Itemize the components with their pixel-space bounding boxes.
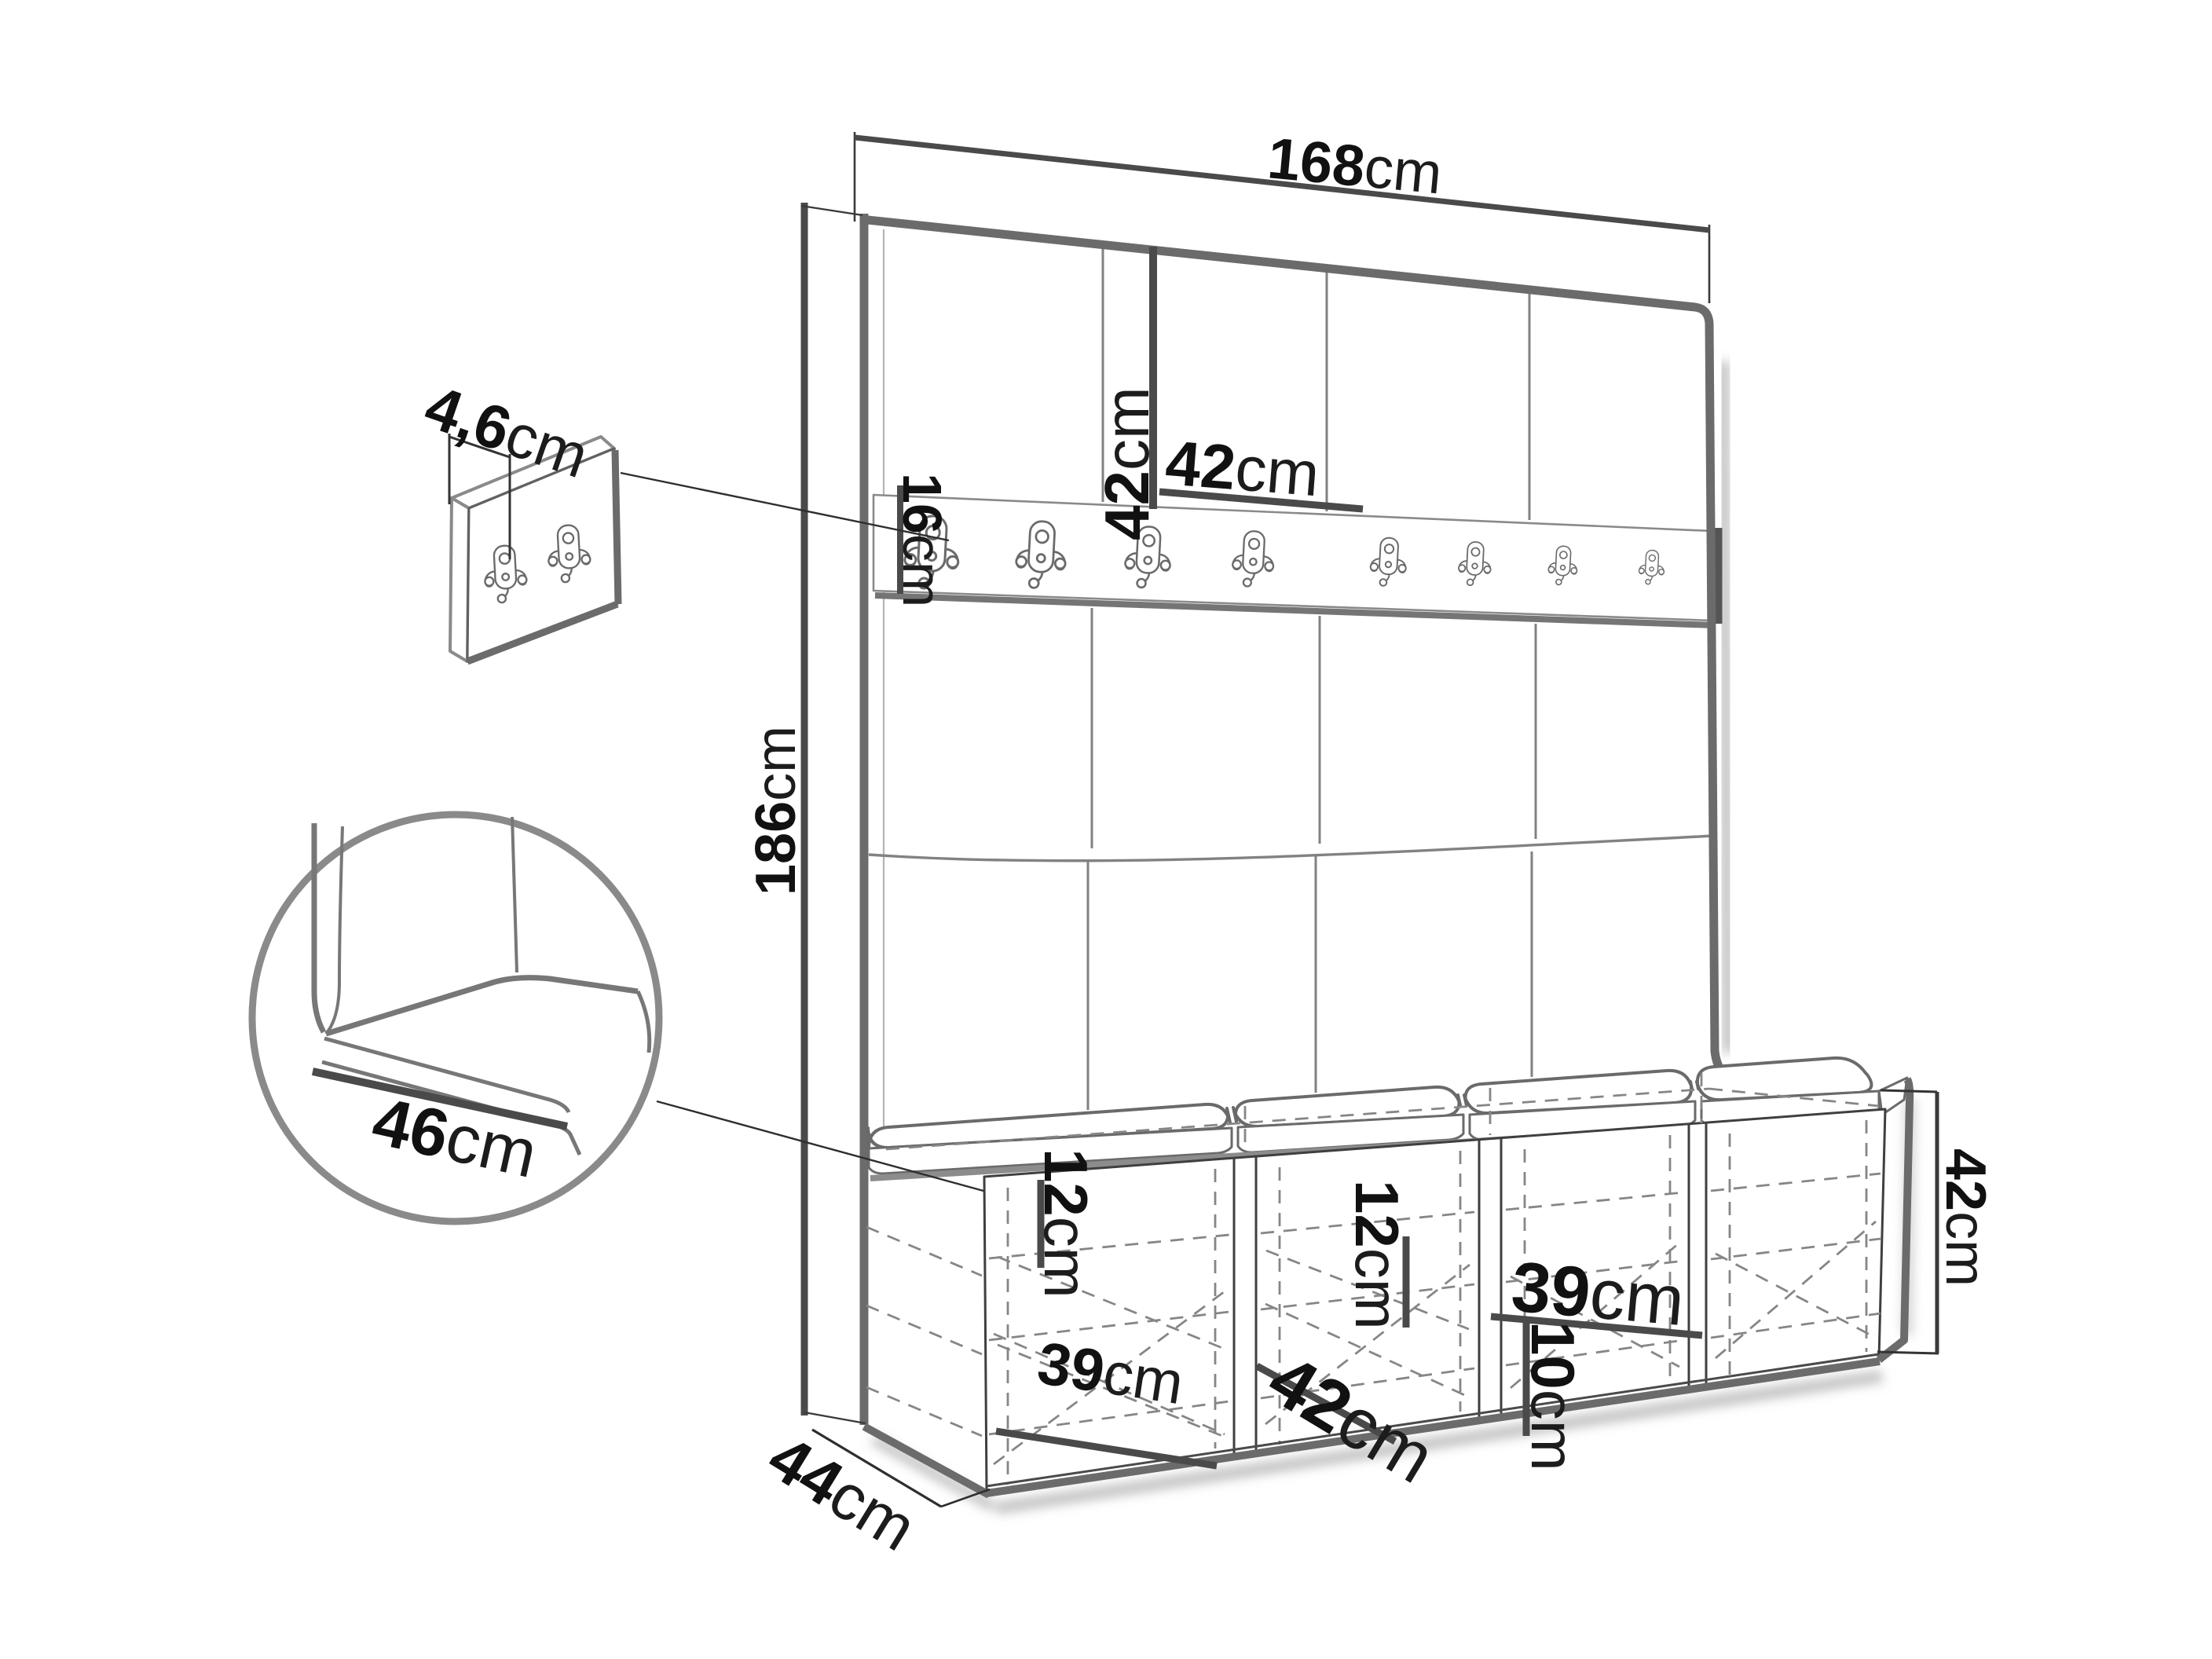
svg-text:42cm: 42cm xyxy=(1163,427,1322,509)
svg-text:10cm: 10cm xyxy=(1518,1321,1588,1471)
svg-text:12cm: 12cm xyxy=(1031,1148,1101,1298)
svg-text:186cm: 186cm xyxy=(745,726,808,895)
svg-text:42cm: 42cm xyxy=(1934,1148,1997,1287)
svg-text:12cm: 12cm xyxy=(1342,1180,1412,1330)
svg-text:42cm: 42cm xyxy=(1092,386,1162,540)
